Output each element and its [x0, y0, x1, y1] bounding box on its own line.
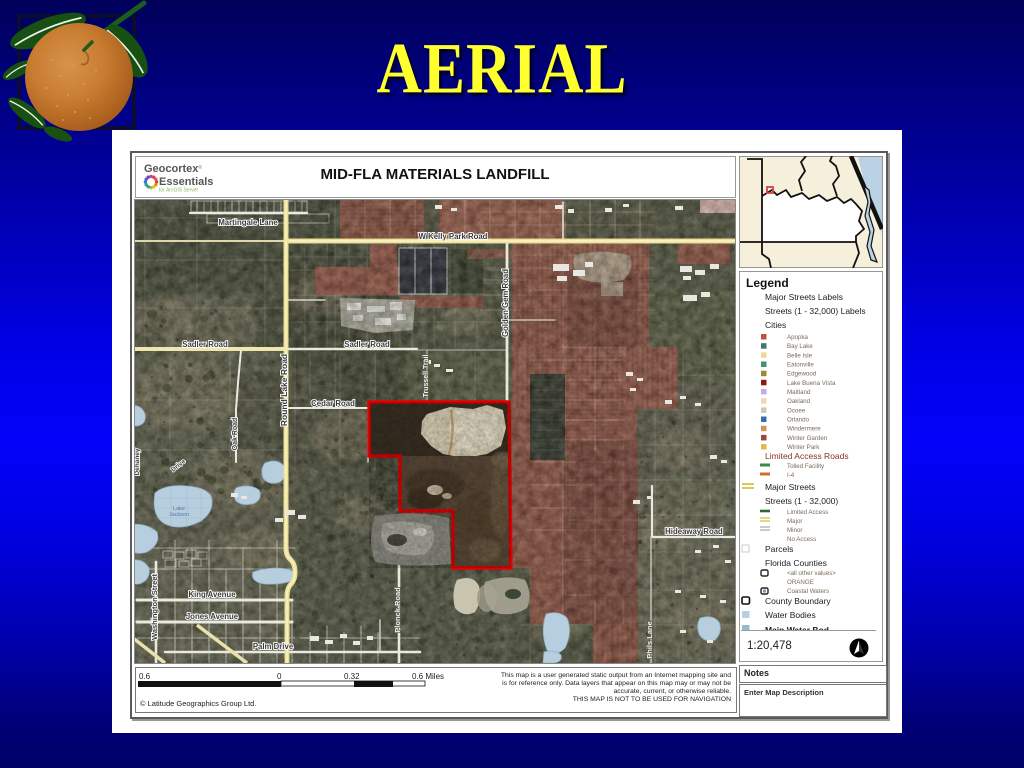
svg-text:Round Lake Road: Round Lake Road: [279, 354, 289, 426]
svg-text:Oakland: Oakland: [787, 398, 811, 405]
svg-text:Golden Gem Road: Golden Gem Road: [501, 269, 510, 337]
svg-text:Coastal Waters: Coastal Waters: [787, 588, 829, 595]
svg-text:I-4: I-4: [787, 472, 795, 479]
svg-text:Major Streets Labels: Major Streets Labels: [765, 292, 843, 302]
svg-text:Streets (1 - 32,000): Streets (1 - 32,000): [765, 496, 838, 506]
svg-text:Sadler Road: Sadler Road: [182, 340, 228, 349]
svg-text:Washington Street: Washington Street: [150, 574, 159, 640]
svg-text:Jackson: Jackson: [169, 512, 189, 518]
svg-text:Ocoee: Ocoee: [787, 407, 806, 414]
svg-text:0: 0: [277, 672, 282, 681]
svg-text:Winter Park: Winter Park: [787, 444, 820, 451]
svg-text:No Access: No Access: [787, 536, 816, 543]
svg-text:King Avenue: King Avenue: [188, 590, 236, 599]
svg-text:Bay Lake: Bay Lake: [787, 343, 813, 350]
svg-text:Phils Lane: Phils Lane: [645, 621, 654, 659]
svg-text:Edgewood: Edgewood: [787, 371, 817, 378]
svg-text:Cities: Cities: [765, 320, 786, 330]
svg-text:County Boundary: County Boundary: [765, 596, 831, 606]
svg-text:Plonck Road: Plonck Road: [393, 587, 402, 633]
svg-text:Tolled Facility: Tolled Facility: [787, 463, 825, 470]
svg-text:0.6: 0.6: [139, 672, 151, 681]
svg-text:Florida Counties: Florida Counties: [765, 558, 827, 568]
svg-text:Martingale Lane: Martingale Lane: [218, 218, 278, 227]
svg-text:Palm Drive: Palm Drive: [253, 642, 294, 651]
svg-text:Lake Buena Vista: Lake Buena Vista: [787, 380, 836, 387]
svg-text:Oak Road: Oak Road: [232, 418, 239, 451]
svg-text:Maitland: Maitland: [787, 389, 811, 396]
svg-text:Streets (1 - 32,000) Labels: Streets (1 - 32,000) Labels: [765, 306, 866, 316]
svg-text:Minor: Minor: [787, 527, 802, 534]
svg-text:Dehaney: Dehaney: [135, 448, 141, 475]
svg-text:Eatonville: Eatonville: [787, 362, 814, 369]
svg-text:Major: Major: [787, 518, 802, 525]
svg-text:Sadler Road: Sadler Road: [344, 340, 390, 349]
svg-text:Parcels: Parcels: [765, 544, 793, 554]
svg-text:ORANGE: ORANGE: [787, 579, 814, 586]
svg-text:Limited Access: Limited Access: [787, 509, 828, 516]
svg-text:0.32: 0.32: [344, 672, 360, 681]
svg-text:Winter Garden: Winter Garden: [787, 435, 828, 442]
svg-text:THIS MAP IS NOT TO BE USED FOR: THIS MAP IS NOT TO BE USED FOR NAVIGATIO…: [573, 696, 731, 703]
svg-text:Trussell Trail: Trussell Trail: [423, 355, 430, 398]
svg-text:Geocortex®: Geocortex®: [144, 163, 202, 175]
svg-text:for ArcGIS Server: for ArcGIS Server: [159, 188, 199, 194]
svg-text:Cedar Road: Cedar Road: [311, 399, 355, 408]
svg-text:0.6 Miles: 0.6 Miles: [412, 672, 444, 681]
svg-text:This map is a user generated s: This map is a user generated static outp…: [501, 672, 731, 679]
svg-text:Limited Access Roads: Limited Access Roads: [765, 451, 849, 461]
svg-text:Water Bodies: Water Bodies: [765, 610, 816, 620]
svg-text:Jones Avenue: Jones Avenue: [186, 612, 239, 621]
svg-text:© Latitude Geographics Group L: © Latitude Geographics Group Ltd.: [140, 699, 256, 708]
svg-text:Major Streets: Major Streets: [765, 482, 816, 492]
svg-text:Windermere: Windermere: [787, 426, 821, 433]
svg-text:Legend: Legend: [746, 276, 789, 290]
svg-text:<all other values>: <all other values>: [787, 570, 836, 577]
svg-text:Orlando: Orlando: [787, 417, 810, 424]
svg-text:1:20,478: 1:20,478: [747, 640, 792, 652]
svg-text:accurate, current, or otherwis: accurate, current, or otherwise reliable…: [614, 688, 732, 695]
svg-text:Hideaway Road: Hideaway Road: [665, 527, 723, 536]
svg-text:Apopka: Apopka: [787, 334, 809, 341]
svg-text:Essentials: Essentials: [159, 176, 213, 188]
svg-text:W Kelly Park Road: W Kelly Park Road: [419, 232, 488, 241]
svg-text:Belle Isle: Belle Isle: [787, 352, 813, 359]
svg-text:is for reference only. Data la: is for reference only. Data layers that …: [502, 680, 731, 687]
